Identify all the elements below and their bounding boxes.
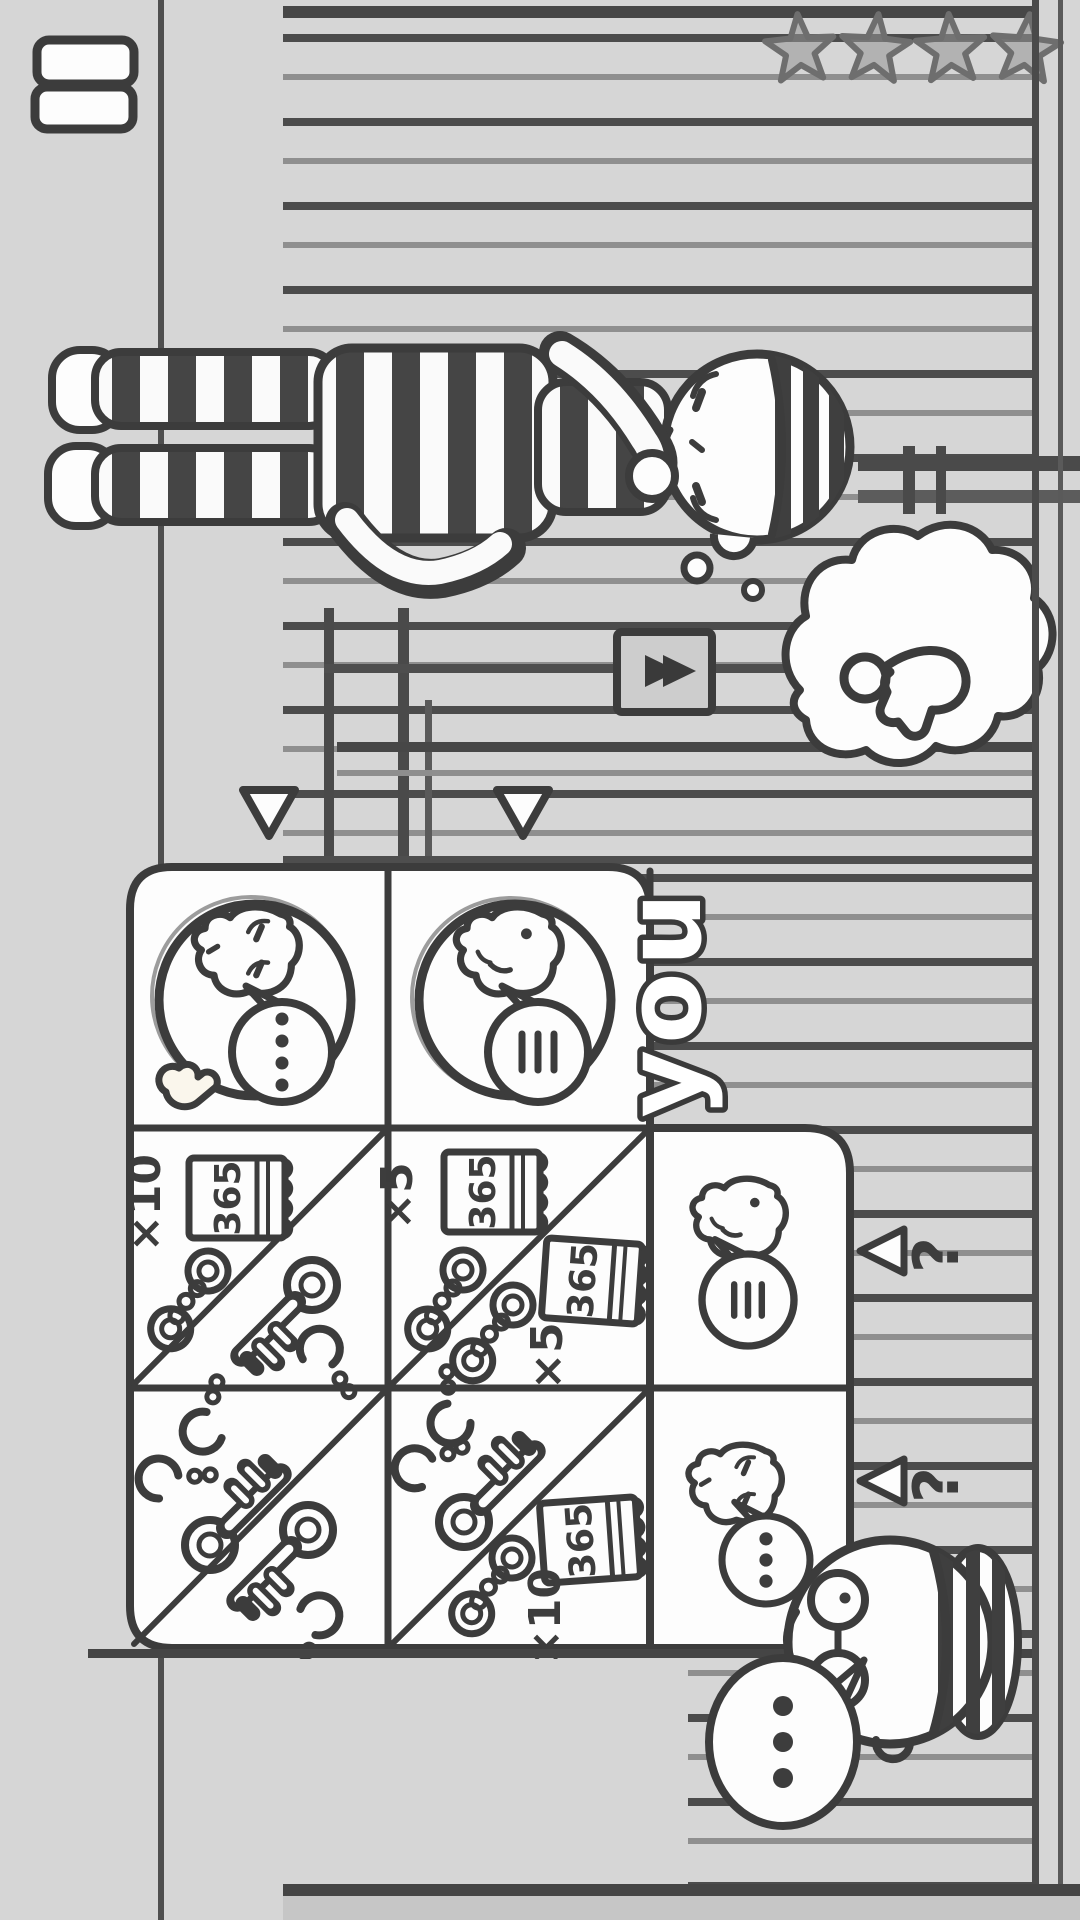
hand bbox=[629, 453, 675, 499]
lower-wall bbox=[166, 1659, 688, 1897]
game-screen: ×10 365 ×5 365 365 ×5 bbox=[0, 0, 1080, 1920]
head bbox=[664, 354, 850, 540]
leg bbox=[95, 448, 335, 522]
bottom-beam bbox=[283, 1884, 1080, 1896]
scene-canvas: ×10 365 ×5 365 365 ×5 bbox=[0, 0, 1080, 1920]
guard-speech-bubble bbox=[709, 1658, 864, 1826]
wall-sign bbox=[617, 632, 712, 712]
calendar-label: 365 bbox=[463, 1154, 504, 1229]
leg bbox=[95, 352, 335, 426]
you-label: you bbox=[603, 886, 725, 1117]
multiplier-label: ×5 bbox=[372, 1162, 423, 1229]
bottom-floor bbox=[283, 1896, 1080, 1920]
floor-edge-line bbox=[1032, 0, 1039, 1920]
multiplier-label: ×10 bbox=[120, 1154, 171, 1252]
calendar-label: 365 bbox=[558, 1502, 604, 1580]
floor-edge-line bbox=[1058, 0, 1063, 1920]
question-label: ? bbox=[900, 1237, 973, 1273]
calendar-label: 365 bbox=[208, 1160, 249, 1235]
calendar-label: 365 bbox=[560, 1241, 606, 1319]
menu-icon bbox=[37, 40, 134, 84]
top-beam bbox=[283, 6, 1035, 18]
multiplier-label: ×5 bbox=[522, 1322, 573, 1389]
menu-button[interactable] bbox=[35, 40, 134, 129]
menu-icon bbox=[35, 87, 133, 129]
question-label: ? bbox=[900, 1467, 973, 1503]
